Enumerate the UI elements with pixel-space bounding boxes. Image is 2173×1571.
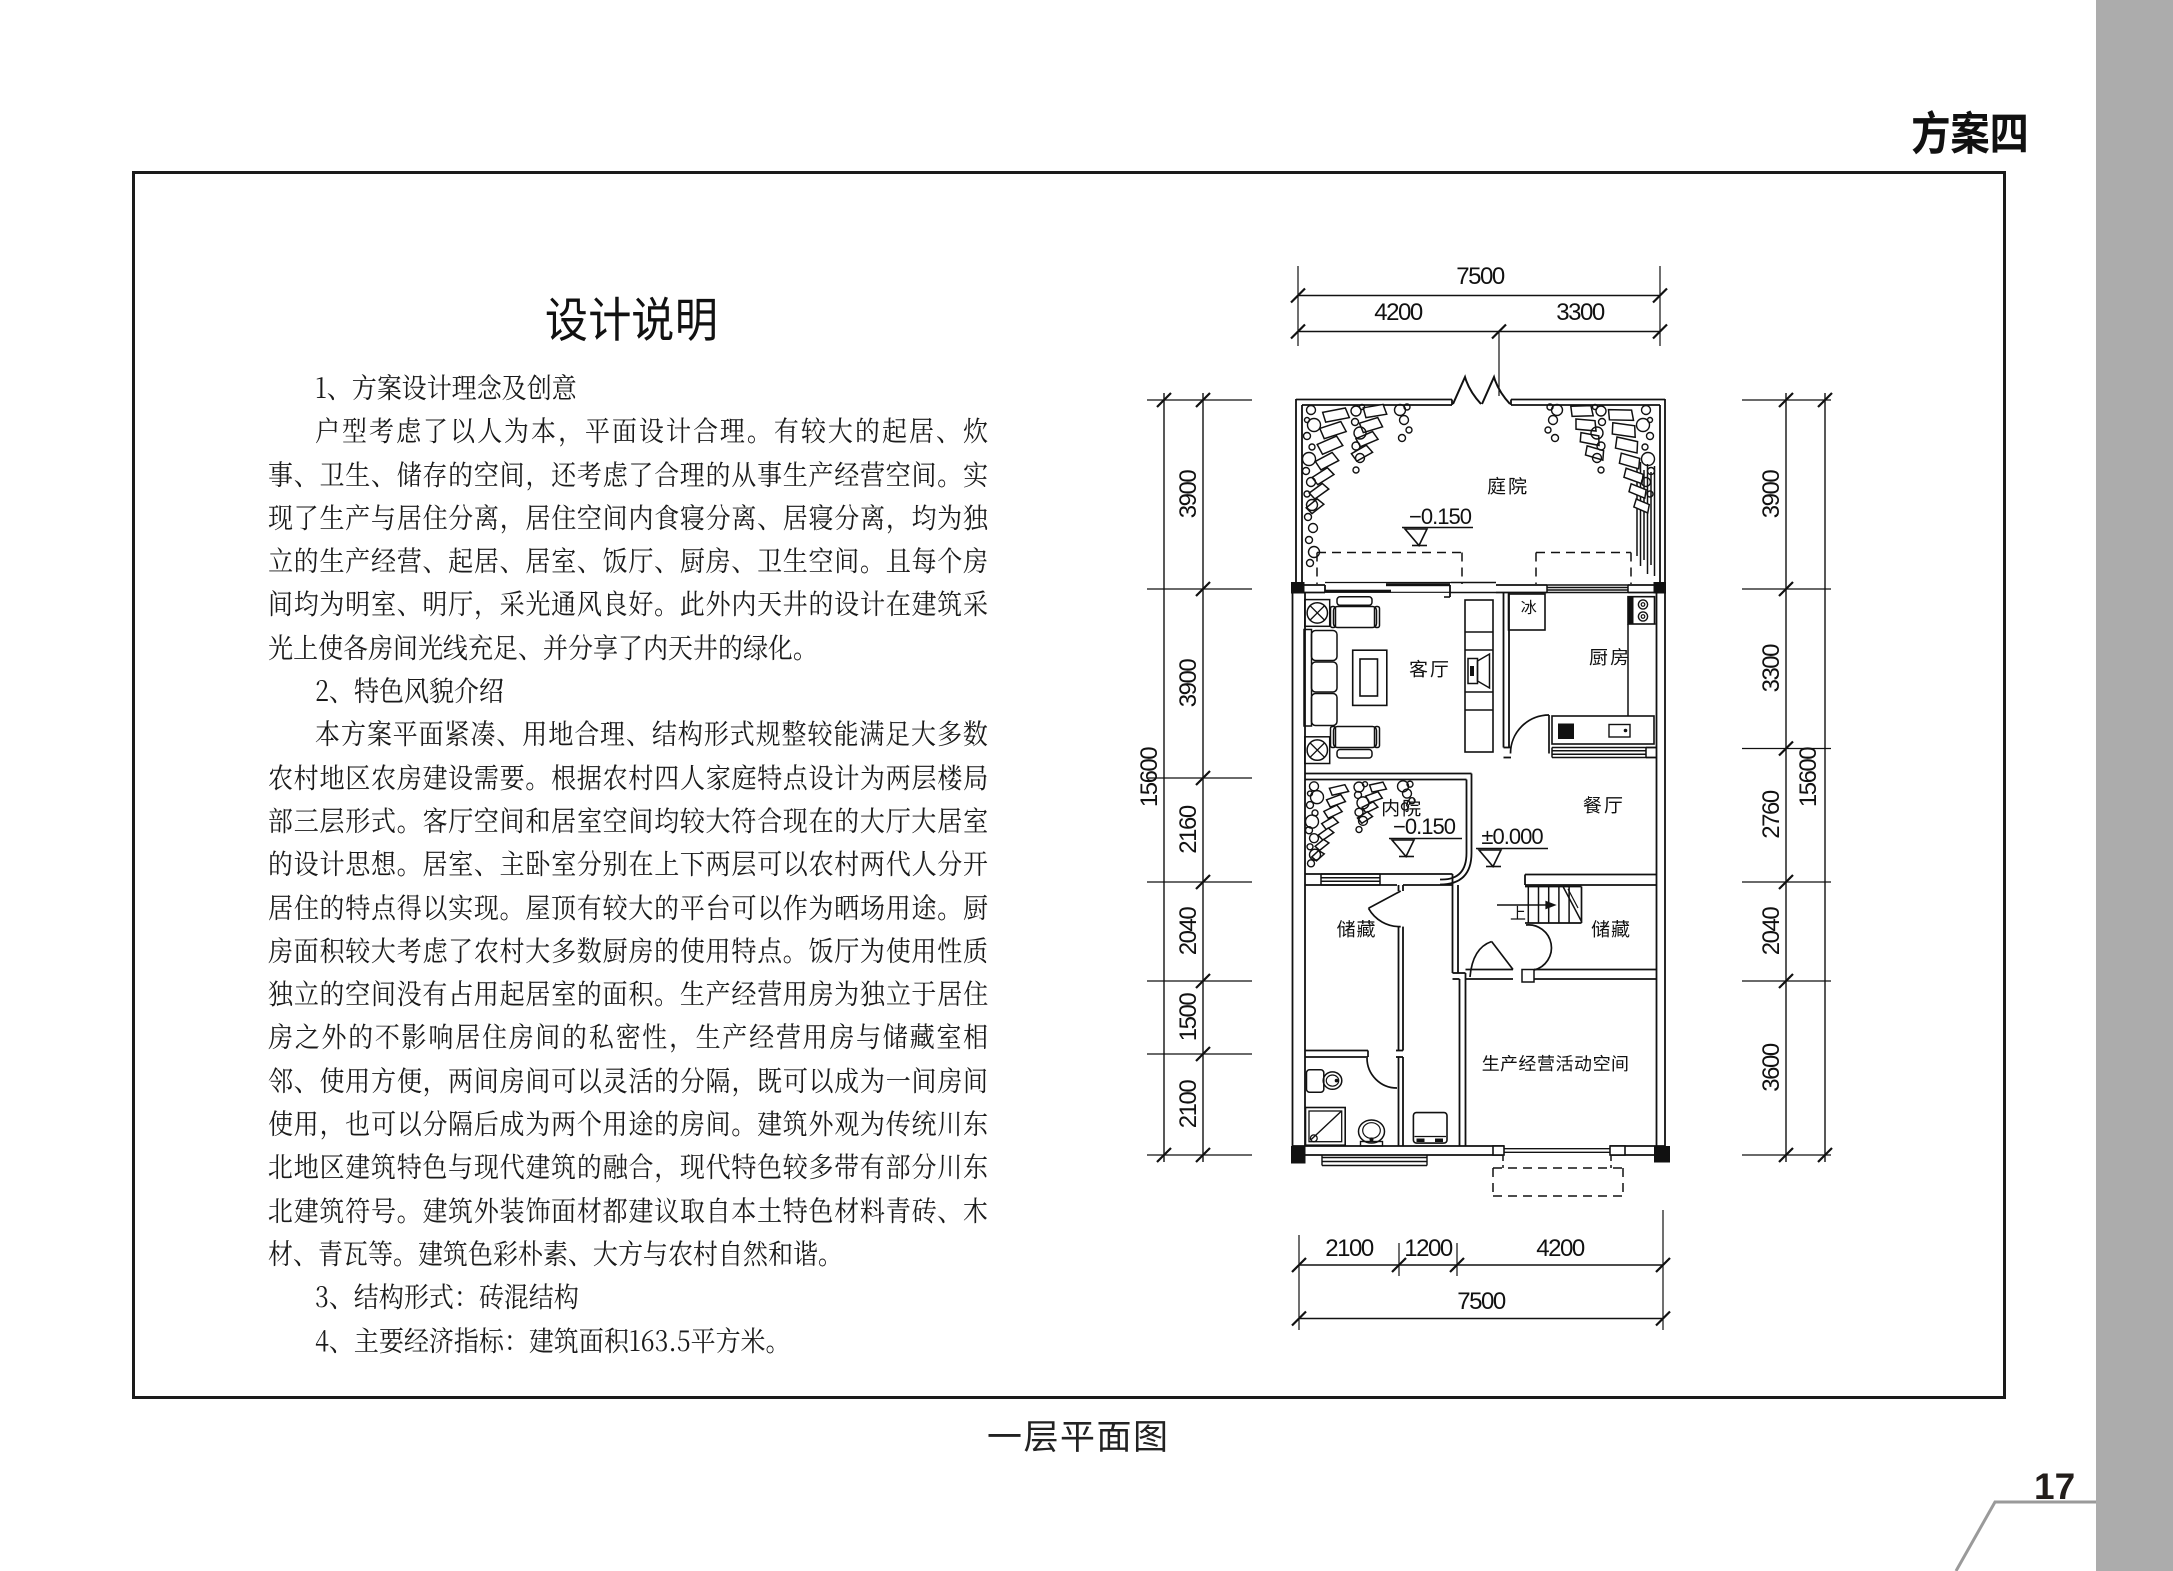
svg-text:厨房: 厨房 bbox=[1589, 643, 1631, 670]
svg-text:±0.000: ±0.000 bbox=[1481, 824, 1543, 849]
svg-text:1500: 1500 bbox=[1175, 993, 1202, 1042]
svg-text:餐厅: 餐厅 bbox=[1583, 791, 1625, 818]
svg-text:4200: 4200 bbox=[1536, 1235, 1585, 1262]
svg-text:3300: 3300 bbox=[1758, 644, 1785, 693]
svg-text:2760: 2760 bbox=[1758, 790, 1785, 839]
svg-text:2160: 2160 bbox=[1175, 805, 1202, 854]
svg-text:3600: 3600 bbox=[1758, 1043, 1785, 1092]
svg-text:2040: 2040 bbox=[1758, 907, 1785, 956]
svg-text:−0.150: −0.150 bbox=[1409, 504, 1472, 529]
svg-text:3900: 3900 bbox=[1175, 659, 1202, 708]
svg-text:2040: 2040 bbox=[1175, 907, 1202, 956]
svg-text:生产经营活动空间: 生产经营活动空间 bbox=[1482, 1050, 1630, 1076]
svg-text:2100: 2100 bbox=[1175, 1080, 1202, 1129]
svg-text:7500: 7500 bbox=[1457, 1288, 1506, 1315]
svg-text:储藏: 储藏 bbox=[1336, 915, 1376, 942]
svg-text:3300: 3300 bbox=[1556, 299, 1605, 326]
svg-text:庭院: 庭院 bbox=[1487, 472, 1529, 499]
svg-text:储藏: 储藏 bbox=[1591, 915, 1631, 942]
svg-text:15600: 15600 bbox=[1795, 747, 1822, 807]
svg-text:客厅: 客厅 bbox=[1409, 655, 1451, 682]
svg-text:4200: 4200 bbox=[1374, 299, 1423, 326]
svg-text:7500: 7500 bbox=[1456, 263, 1505, 290]
svg-text:1200: 1200 bbox=[1404, 1235, 1453, 1262]
svg-text:2100: 2100 bbox=[1325, 1235, 1374, 1262]
svg-text:15600: 15600 bbox=[1136, 747, 1163, 807]
svg-text:3900: 3900 bbox=[1175, 470, 1202, 519]
svg-text:冰: 冰 bbox=[1521, 594, 1538, 618]
svg-text:上: 上 bbox=[1510, 900, 1526, 924]
svg-text:3900: 3900 bbox=[1758, 470, 1785, 519]
